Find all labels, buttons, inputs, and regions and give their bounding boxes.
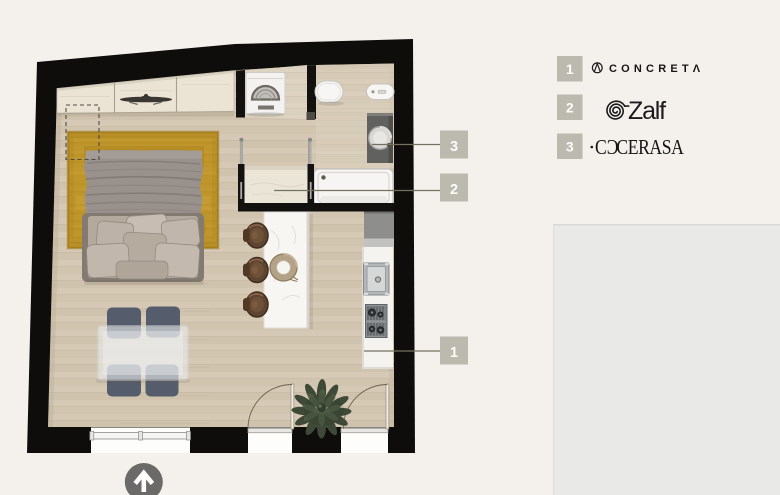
svg-text:2: 2 (566, 100, 574, 116)
svg-text:1: 1 (450, 345, 458, 361)
svg-text:CERASA: CERASA (616, 137, 683, 160)
svg-text:1: 1 (566, 61, 574, 77)
svg-text:3: 3 (450, 139, 458, 155)
svg-text:C: C (595, 137, 607, 160)
svg-text:2: 2 (450, 182, 458, 198)
svg-text:CONCRETΛ: CONCRETΛ (609, 63, 704, 75)
svg-text:Zalf: Zalf (628, 97, 666, 125)
svg-text:3: 3 (566, 139, 574, 155)
